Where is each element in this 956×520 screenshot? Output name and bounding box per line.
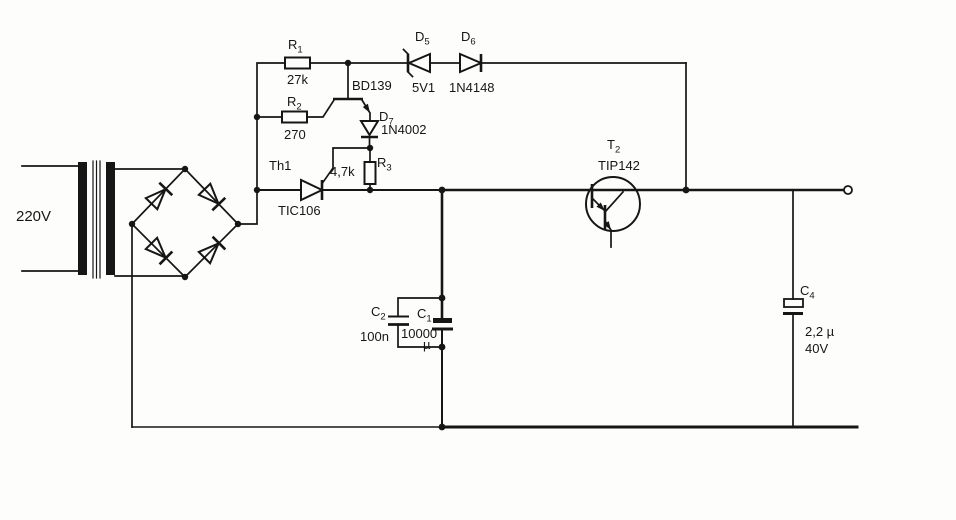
- c4-value-label: 2,2 µ: [805, 324, 835, 339]
- rails: [132, 63, 857, 430]
- pass-transistor-t2: T2 TIP142: [586, 137, 640, 247]
- d7-value-label: 1N4002: [381, 122, 427, 137]
- junction-dot: [439, 344, 446, 351]
- transformer: 220V: [16, 161, 185, 278]
- d5-ref-label: D5: [415, 29, 430, 48]
- resistor-r2: R2 270: [254, 94, 334, 142]
- resistor-r1: R1 27k: [285, 37, 348, 87]
- emitter-arrow: [363, 104, 370, 113]
- d6-ref-label: D6: [461, 29, 476, 48]
- r2-value-label: 270: [284, 127, 306, 142]
- c4-rating-label: 40V: [805, 341, 828, 356]
- th1-value-label: TIC106: [278, 203, 321, 218]
- c4-plus-plate: [784, 299, 803, 307]
- c1-value-label: 10000: [401, 326, 437, 341]
- junction-dot: [182, 166, 188, 172]
- mains-voltage-label: 220V: [16, 208, 51, 225]
- r3-value-label: 4,7k: [330, 164, 355, 179]
- junction-dot: [683, 187, 690, 194]
- junction-dot: [254, 114, 260, 120]
- junction-dot: [254, 187, 260, 193]
- output-cap-c4: C4 2,2 µ 40V: [783, 190, 835, 427]
- output-terminal: [844, 186, 852, 194]
- bridge-diamond-wire: [132, 169, 238, 277]
- junction-dot: [439, 295, 446, 302]
- r2-right-lead: [307, 100, 334, 117]
- th1-ref-label: Th1: [269, 158, 291, 173]
- feedback-diodes: D5 5V1 D6 1N4148: [348, 29, 686, 95]
- primary-winding: [78, 162, 87, 275]
- c2-value-label: 100n: [360, 329, 389, 344]
- r1-ref-label: R1: [288, 37, 303, 56]
- t2-ref-label: T2: [607, 137, 620, 156]
- c1-ref-label: C1: [417, 306, 432, 325]
- c2-ref-label: C2: [371, 304, 386, 323]
- bd139-label: BD139: [352, 78, 392, 93]
- bridge-rectifier: [129, 166, 257, 280]
- thyristor-th1: Th1 TIC106: [269, 148, 370, 218]
- terminal-circle: [844, 186, 852, 194]
- c1-unit-label: µ: [423, 337, 431, 352]
- smoothing-caps: C2 100n C1 10000 µ: [360, 187, 453, 427]
- c1-plus-plate: [433, 318, 452, 323]
- d5-triangle: [409, 54, 430, 72]
- t2-value-label: TIP142: [598, 158, 640, 173]
- d6-value-label: 1N4148: [449, 80, 495, 95]
- resistor-body: [282, 112, 307, 123]
- schematic-page: 220V: [0, 0, 956, 520]
- diode-triangle: [361, 121, 378, 135]
- junction-dot: [367, 187, 373, 193]
- junction-dot: [439, 187, 446, 194]
- r3-ref-label: R3: [377, 155, 392, 174]
- junction-dot: [182, 274, 188, 280]
- d5-value-label: 5V1: [412, 80, 435, 95]
- secondary-winding: [106, 162, 115, 275]
- r2-ref-label: R2: [287, 94, 302, 113]
- thyristor-triangle: [301, 180, 322, 200]
- bridge-positive-output-wire: [238, 190, 257, 224]
- d6-triangle: [460, 54, 481, 72]
- t2-collector-line: [605, 192, 623, 212]
- resistor-r3: R3 4,7k: [330, 145, 392, 193]
- junction-dot: [367, 145, 373, 151]
- resistor-body: [365, 162, 376, 184]
- r1-value-label: 27k: [287, 72, 308, 87]
- schematic-canvas: 220V: [0, 0, 956, 520]
- resistor-body: [285, 58, 310, 69]
